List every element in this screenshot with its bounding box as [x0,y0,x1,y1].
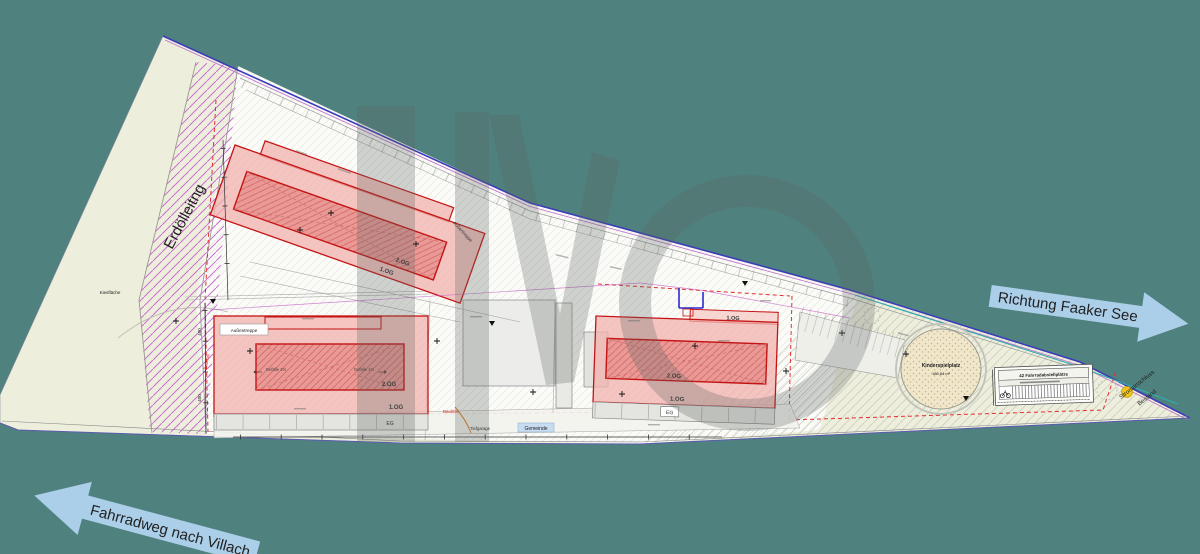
playground-label: Kinderspielplatz [922,363,961,369]
gravel-area-label: Kiesfläche [100,290,121,295]
gemeinde-label: Gemeinde [524,426,547,432]
building-b-gefaelle-left: Gefälle 1% [266,367,287,372]
site-plan-screenshot: 2.OG 1.OG Außentreppe Außentreppe Gefäll… [0,0,1200,554]
watermark-letter-i [357,106,415,442]
bike-shelter: 42 Fahrradabstellplätze [992,364,1093,405]
dimension-400-upper: 400 [197,328,202,336]
building-c-level-eg: EG [666,410,674,416]
building-b-aussentreppe-label: Außentreppe [231,328,258,333]
dimension-400-lower: 400 [197,394,202,402]
playground-area-label: 180,84 m² [932,371,951,376]
playground: Kinderspielplatz 180,84 m² [896,324,986,414]
building-c-level-1og-top: 1.OG [726,316,739,322]
